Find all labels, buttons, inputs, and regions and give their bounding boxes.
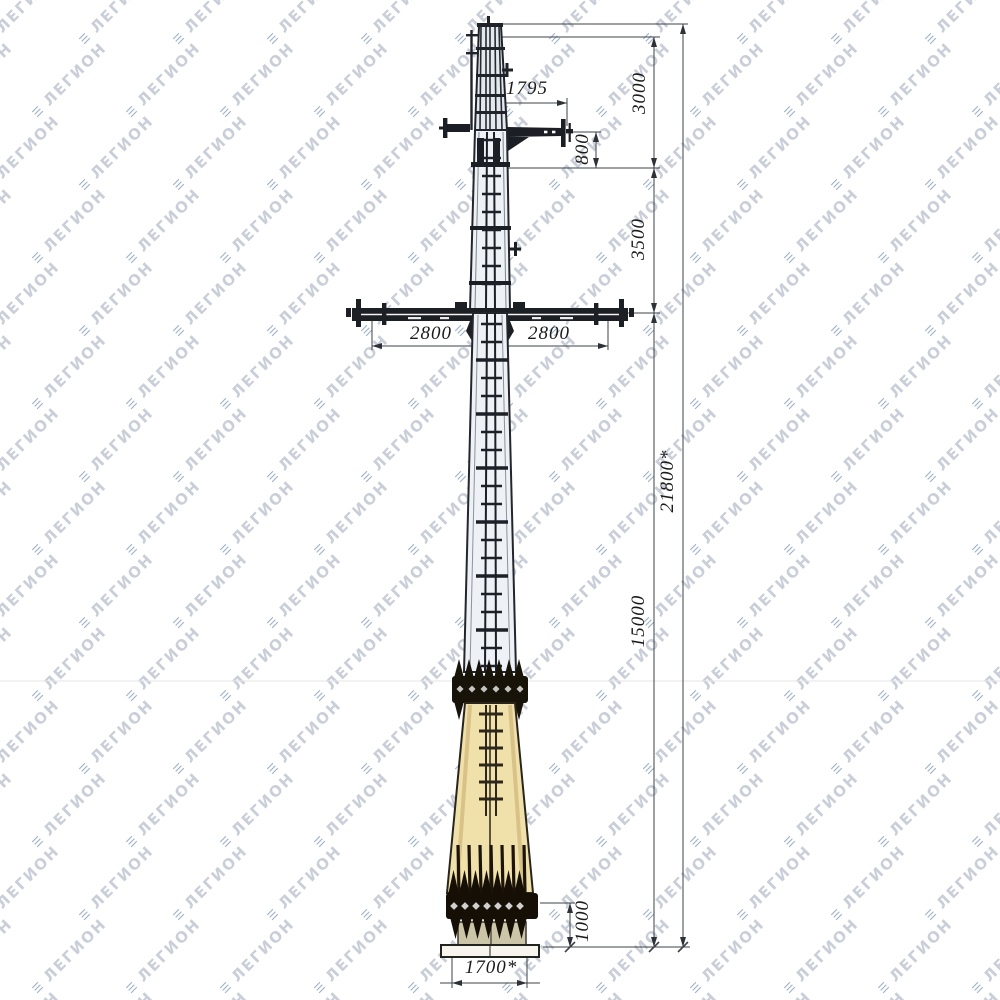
top-spire	[466, 16, 513, 130]
upper-mast	[469, 130, 521, 310]
drawing-canvas: ☰ЛЕГИОН☰ЛЕГИОН☰ЛЕГИОН☰ЛЕГИОН☰ЛЕГИОН☰ЛЕГИ…	[0, 0, 1000, 1000]
pole-structure	[346, 16, 634, 957]
pole-shaft	[464, 313, 516, 672]
lower-pole	[447, 703, 533, 893]
pole-elevation-drawing	[0, 0, 1000, 1000]
dimension-lines	[372, 24, 690, 988]
